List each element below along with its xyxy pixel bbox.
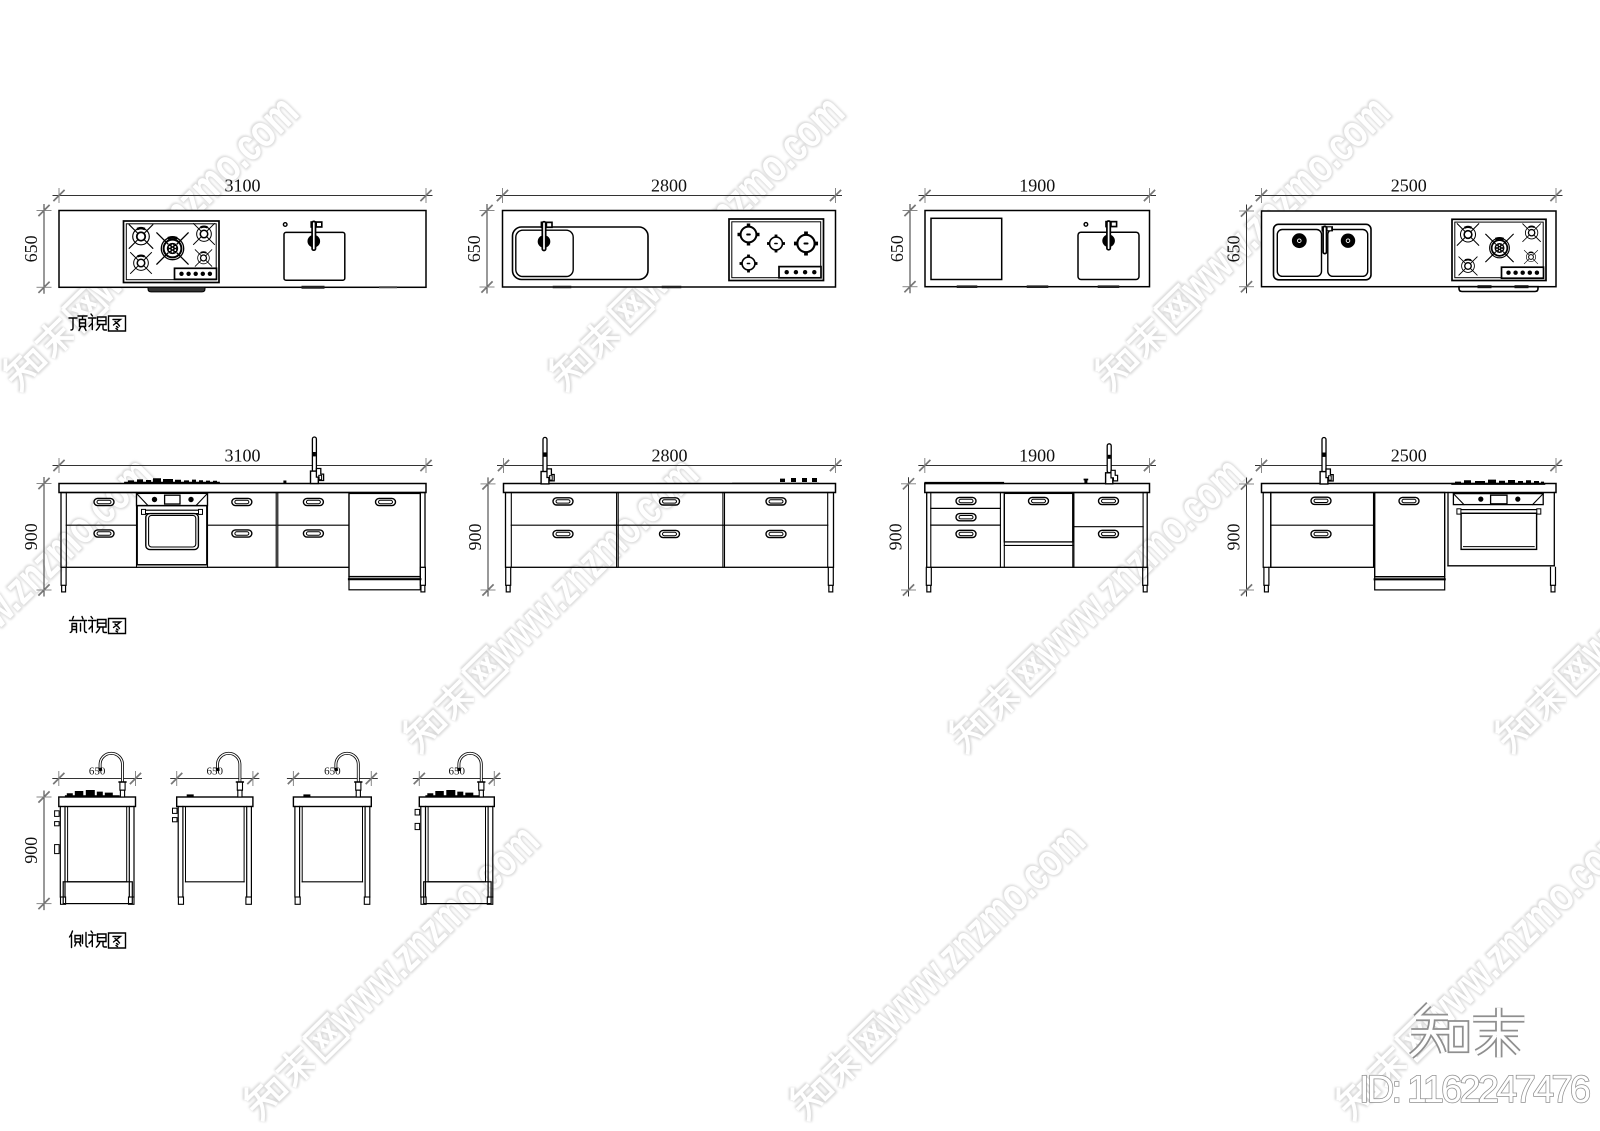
svg-text:2500: 2500 [1391, 446, 1427, 466]
svg-text:2800: 2800 [651, 176, 687, 196]
svg-text:650: 650 [207, 766, 224, 778]
svg-text:650: 650 [887, 235, 907, 262]
svg-text:900: 900 [21, 837, 41, 864]
svg-text:900: 900 [465, 523, 485, 550]
svg-text:650: 650 [89, 766, 106, 778]
svg-text:650: 650 [464, 235, 484, 262]
svg-text:900: 900 [21, 523, 41, 550]
svg-text:650: 650 [324, 766, 341, 778]
svg-text:2500: 2500 [1391, 176, 1427, 196]
svg-text:3100: 3100 [225, 446, 261, 466]
svg-text:1900: 1900 [1019, 176, 1055, 196]
svg-text:2800: 2800 [652, 446, 688, 466]
svg-text:650: 650 [449, 766, 466, 778]
svg-text:650: 650 [1224, 235, 1244, 262]
svg-text:1900: 1900 [1019, 446, 1055, 466]
svg-text:900: 900 [1224, 524, 1244, 551]
svg-text:3100: 3100 [225, 176, 261, 196]
svg-text:650: 650 [21, 235, 41, 262]
svg-text:900: 900 [886, 523, 906, 550]
svg-text:ID: 1162247476: ID: 1162247476 [1359, 1069, 1591, 1111]
